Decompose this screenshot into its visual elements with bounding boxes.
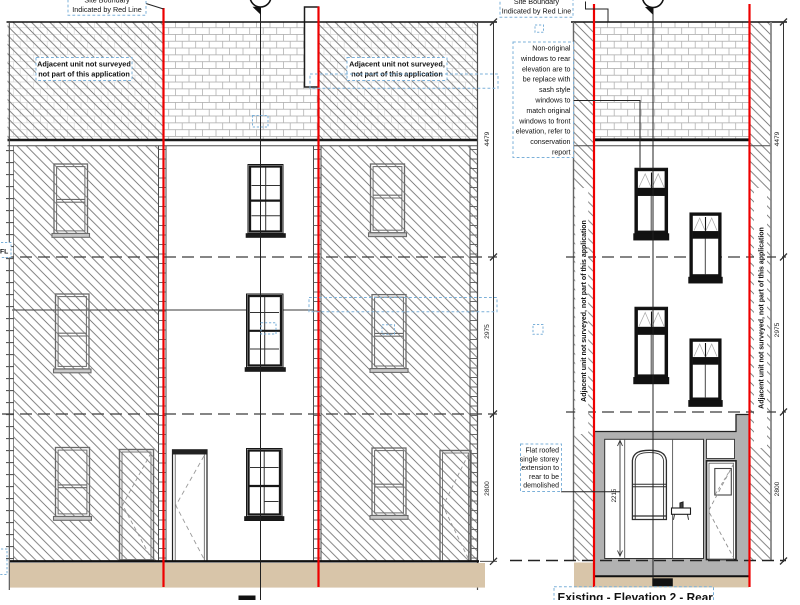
svg-text:elevation, refer to: elevation, refer to: [516, 128, 571, 136]
svg-text:single storey: single storey: [520, 456, 560, 463]
svg-text:report: report: [552, 149, 571, 157]
svg-text:Adjacent unit not surveyed, no: Adjacent unit not surveyed, not part of …: [581, 220, 588, 402]
svg-text:windows to: windows to: [534, 97, 570, 105]
svg-text:be replace with: be replace with: [523, 76, 571, 84]
svg-text:elevation are to: elevation are to: [522, 65, 571, 73]
svg-text:Non-original: Non-original: [532, 45, 571, 53]
svg-text:2975: 2975: [774, 322, 781, 337]
svg-text:2800: 2800: [484, 481, 491, 496]
svg-text:4479: 4479: [484, 131, 491, 146]
svg-text:demolished: demolished: [523, 483, 559, 490]
svg-text:Indicated by Red Line: Indicated by Red Line: [502, 7, 572, 16]
svg-text:2215: 2215: [611, 488, 618, 502]
svg-text:rear to be: rear to be: [529, 474, 559, 481]
svg-text:not part of this application: not part of this application: [38, 70, 130, 79]
svg-text:Adjacent unit not surveyed, no: Adjacent unit not surveyed, not part of …: [759, 227, 766, 409]
svg-text:Existing - Elevation 2 - Rear: Existing - Elevation 2 - Rear: [558, 590, 714, 600]
svg-text:Indicated by Red Line: Indicated by Red Line: [72, 5, 142, 14]
svg-text:2800: 2800: [774, 481, 781, 496]
svg-text:conservation: conservation: [530, 138, 570, 146]
svg-text:sash style: sash style: [539, 86, 571, 94]
svg-text:Site Boundary: Site Boundary: [514, 0, 560, 6]
svg-text:match original: match original: [526, 107, 571, 115]
svg-text:Flat roofed: Flat roofed: [526, 448, 560, 455]
svg-text:Adjacent unit not surveyed,: Adjacent unit not surveyed,: [349, 60, 445, 69]
svg-text:2975: 2975: [484, 324, 491, 339]
svg-text:4479: 4479: [774, 131, 781, 146]
svg-text:extension to: extension to: [521, 465, 559, 472]
svg-text:Adjacent unit not surveyed: Adjacent unit not surveyed: [37, 60, 131, 69]
svg-text:FL: FL: [0, 249, 8, 256]
svg-text:windows to rear: windows to rear: [520, 55, 571, 63]
svg-text:windows to front: windows to front: [518, 117, 570, 125]
